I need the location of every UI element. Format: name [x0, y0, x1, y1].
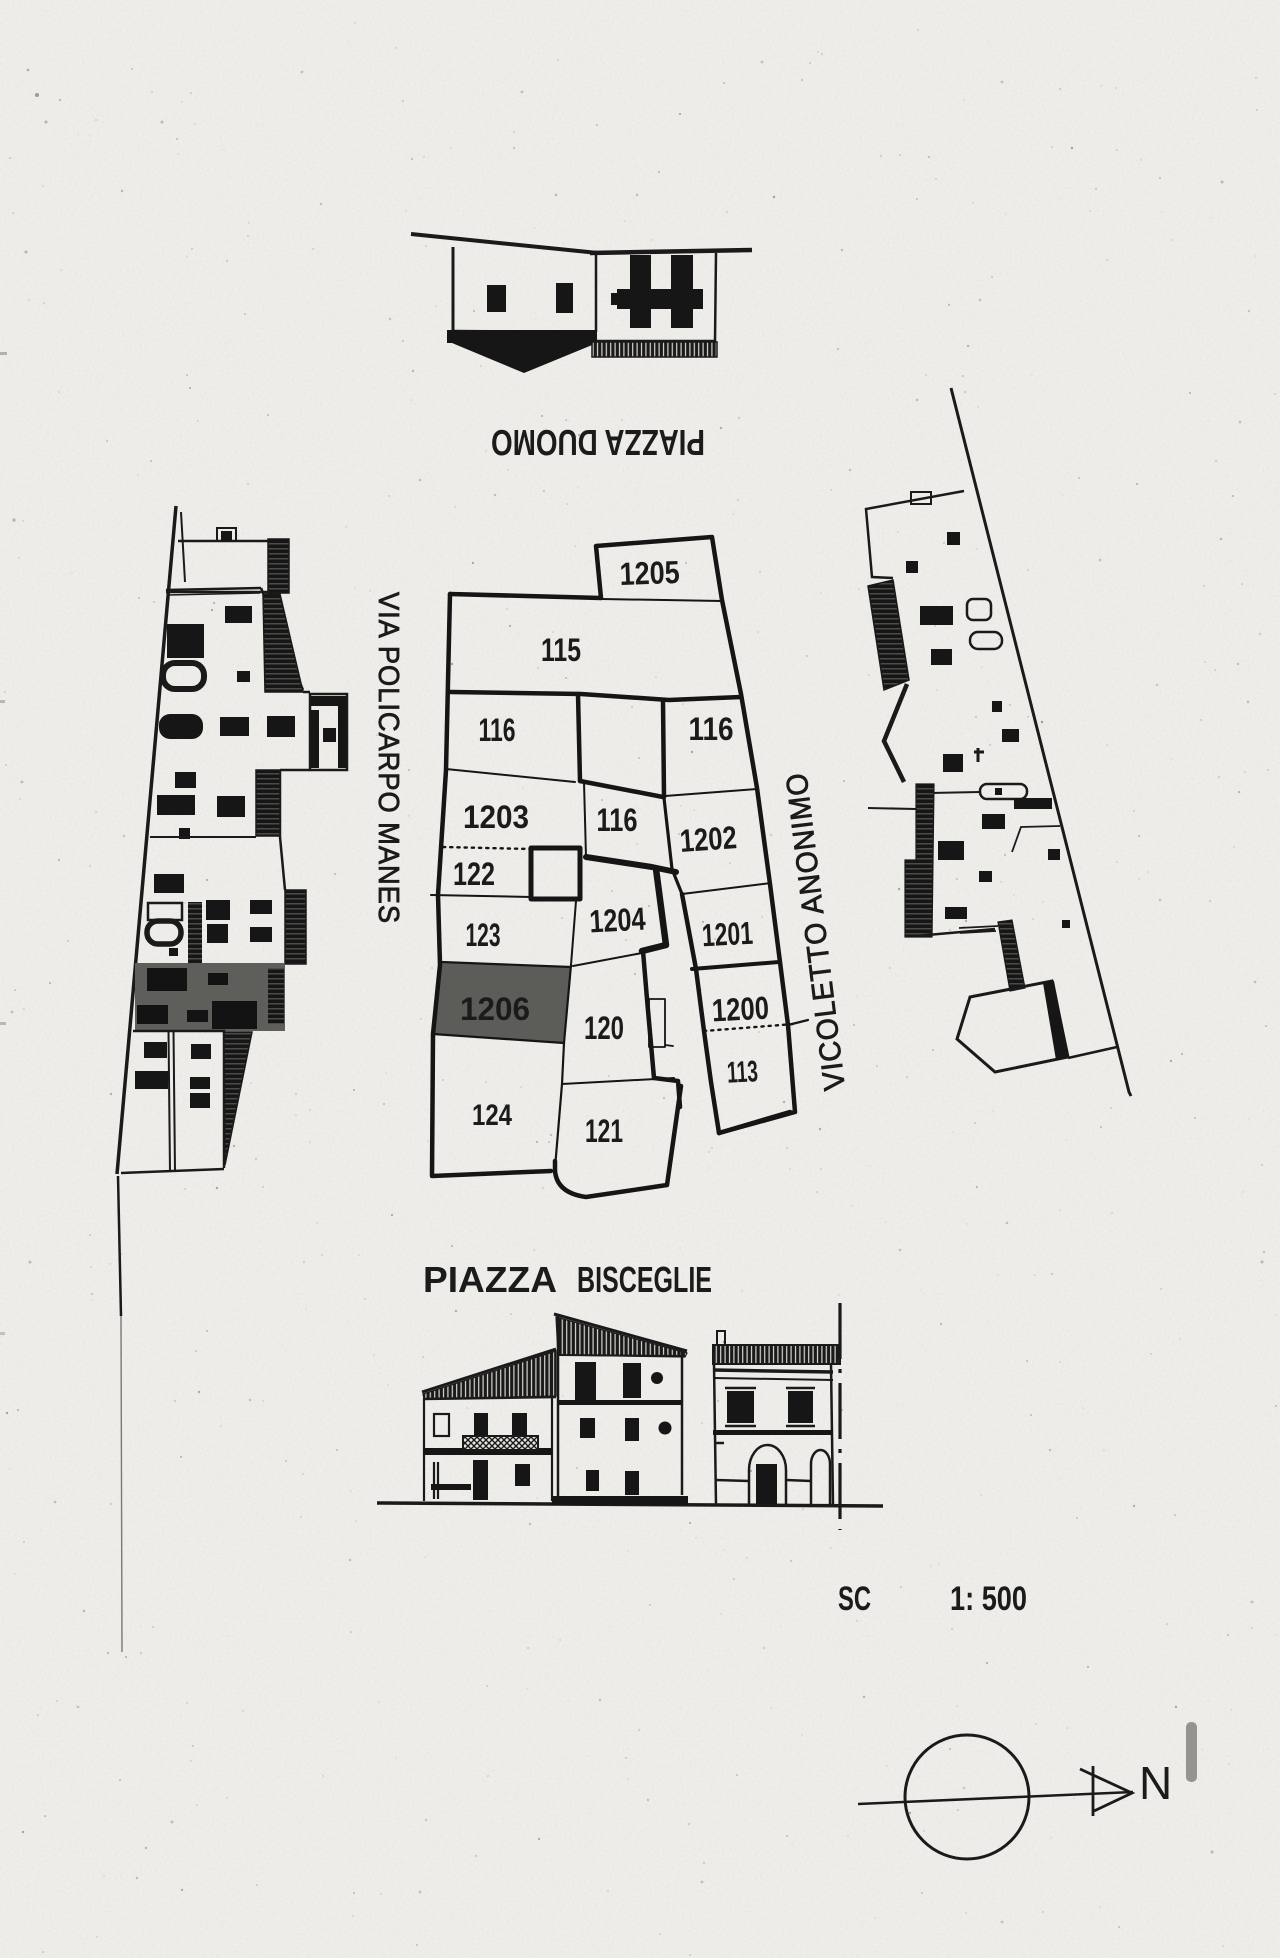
svg-text:115: 115 — [541, 632, 581, 668]
svg-text:1206: 1206 — [460, 991, 530, 1027]
svg-text:123: 123 — [466, 917, 501, 953]
svg-text:122: 122 — [453, 856, 495, 892]
svg-text:SC: SC — [838, 1580, 871, 1618]
svg-text:120: 120 — [584, 1010, 624, 1046]
svg-text:121: 121 — [585, 1113, 623, 1149]
svg-text:116: 116 — [479, 712, 516, 748]
svg-text:1201: 1201 — [701, 915, 754, 954]
svg-text:1200: 1200 — [711, 990, 770, 1029]
svg-text:N: N — [1139, 1757, 1172, 1809]
svg-text:1204: 1204 — [589, 901, 647, 940]
svg-text:113: 113 — [726, 1055, 759, 1090]
svg-text:BISCEGLIE: BISCEGLIE — [577, 1259, 712, 1300]
svg-text:1203: 1203 — [463, 799, 529, 835]
svg-text:1202: 1202 — [679, 819, 738, 859]
svg-text:1205: 1205 — [619, 554, 680, 592]
svg-text:124: 124 — [472, 1099, 512, 1132]
svg-text:VIA POLICARPO MANES: VIA POLICARPO MANES — [372, 592, 404, 924]
svg-text:PIAZZA: PIAZZA — [423, 1259, 557, 1300]
svg-text:1: 500: 1: 500 — [950, 1580, 1027, 1618]
svg-text:116: 116 — [597, 802, 638, 838]
svg-text:PIAZZA DUOMO: PIAZZA DUOMO — [491, 422, 705, 463]
svg-text:116: 116 — [689, 711, 734, 747]
